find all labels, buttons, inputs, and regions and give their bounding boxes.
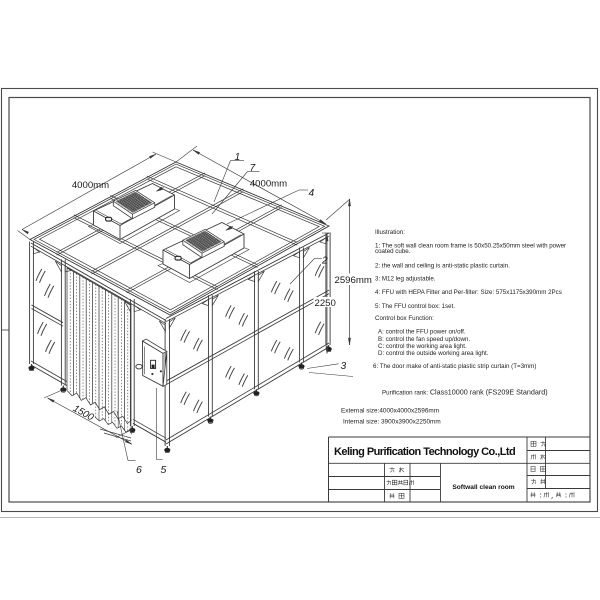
svg-text:Illustration:: Illustration: bbox=[375, 229, 405, 236]
svg-text:Internal size: 3900x3900x2250: Internal size: 3900x3900x2250mm bbox=[343, 418, 441, 425]
svg-text:A: control the FFU power on/of: A: control the FFU power on/off. bbox=[378, 328, 466, 335]
svg-text:4000mm: 4000mm bbox=[250, 179, 287, 190]
svg-text:1: 1 bbox=[235, 152, 241, 163]
svg-text:4000mm: 4000mm bbox=[72, 180, 109, 191]
svg-text:5: 5 bbox=[161, 464, 167, 476]
svg-text:Keling Purification Technology: Keling Purification Technology Co.,Ltd bbox=[334, 446, 515, 458]
svg-text:2596mm: 2596mm bbox=[335, 275, 372, 286]
svg-text:6: 6 bbox=[136, 464, 142, 476]
svg-text:3: 3 bbox=[341, 361, 347, 372]
svg-text:2: the wall and ceiling is an: 2: the wall and ceiling is anti-static p… bbox=[375, 262, 510, 269]
svg-text:2: 2 bbox=[321, 256, 328, 267]
svg-text:Purification rank: Class10000: Purification rank: Class10000 rank (FS20… bbox=[382, 388, 548, 397]
svg-text:4: FFU with HEPA Filter and Pe: 4: FFU with HEPA Filter and Per-filter: … bbox=[375, 289, 562, 296]
svg-text:Control box Function:: Control box Function: bbox=[375, 315, 434, 322]
svg-text:D: control the outside working: D: control the outside working area ligh… bbox=[378, 350, 489, 357]
svg-text:2250: 2250 bbox=[315, 298, 336, 309]
svg-text:Softwall clean room: Softwall clean room bbox=[452, 484, 514, 491]
svg-text:5: The FFU control box: 1set.: 5: The FFU control box: 1set. bbox=[375, 303, 455, 310]
svg-text:External size:4000x4000x2596mm: External size:4000x4000x2596mm bbox=[341, 408, 439, 415]
svg-text:4: 4 bbox=[309, 188, 315, 199]
svg-text:3: M12 leg adjustable.: 3: M12 leg adjustable. bbox=[375, 276, 436, 283]
svg-text:C: control the working area li: C: control the working area light. bbox=[378, 343, 467, 350]
svg-text:coated cube.: coated cube. bbox=[375, 248, 411, 255]
svg-text:6: The door make of anti-stati: 6: The door make of anti-static plastic … bbox=[373, 363, 536, 370]
